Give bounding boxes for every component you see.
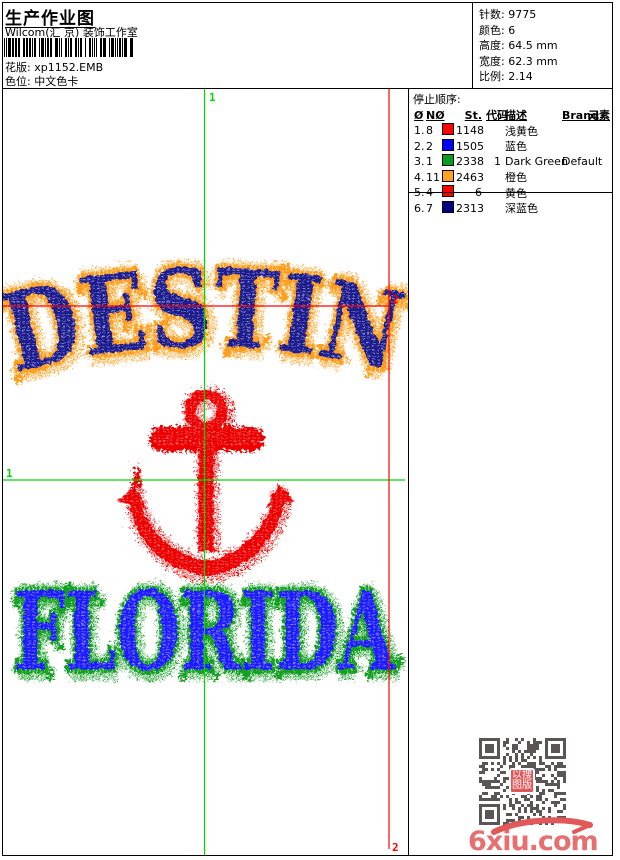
cell-needle: 11 xyxy=(426,171,442,184)
guide-marker-1-top: 1 xyxy=(209,91,216,104)
cell-description: 蓝色 xyxy=(505,138,562,154)
table-row: 2. 2 1505 蓝色 xyxy=(409,139,613,155)
cell-stitches: 2463 xyxy=(456,171,482,184)
color-swatch xyxy=(442,154,454,166)
col-description: 描述 xyxy=(505,107,562,123)
color-card-label: 色位: 中文色卡 xyxy=(5,73,78,89)
cell-stitches: 1148 xyxy=(456,124,482,137)
table-row: 3. 1 2338 1 Dark Green Default xyxy=(409,154,613,170)
cell-stop: 6. xyxy=(414,202,426,215)
table-row: 6. 7 2313 深蓝色 xyxy=(409,201,613,217)
cell-stop: 1. xyxy=(414,124,426,137)
color-swatch xyxy=(442,123,454,135)
table-header-row: Ø NØ St. 代码 描述 Brand 元素 xyxy=(409,108,613,122)
col-needle: NØ xyxy=(426,109,442,122)
stat-ratio: 比例: 2.14 xyxy=(479,69,612,85)
cell-needle: 8 xyxy=(426,124,442,137)
color-swatch xyxy=(442,170,454,182)
top-word-body: DESTIN xyxy=(3,244,408,396)
embroidery-design-canvas: DESTIN DESTIN DESTIN xyxy=(3,89,408,855)
col-code: 代码 xyxy=(486,107,501,123)
table-bottom-border xyxy=(409,192,613,193)
table-row: 1. 8 1148 浅黄色 xyxy=(409,123,613,139)
site-watermark: 6xiu.com xyxy=(464,816,604,858)
cell-description: 深蓝色 xyxy=(505,200,562,216)
color-swatch xyxy=(442,201,454,213)
guide-marker-2-right: 2 xyxy=(392,293,399,306)
col-stitches: St. xyxy=(456,109,482,122)
stat-stitches: 针数: 9775 xyxy=(479,7,612,23)
col-stop: Ø xyxy=(414,109,426,122)
cell-stitches: 1505 xyxy=(456,140,482,153)
cell-needle: 1 xyxy=(426,155,442,168)
bottom-word-body: FLORIDA xyxy=(12,568,395,694)
cell-needle: 2 xyxy=(426,140,442,153)
stat-width: 宽度: 62.3 mm xyxy=(479,54,612,70)
cell-needle: 7 xyxy=(426,202,442,215)
stop-sequence-title: 停止顺序: xyxy=(409,89,613,108)
stat-colors: 颜色: 6 xyxy=(479,23,612,39)
qr-center-logo: 以搜 图版 xyxy=(509,768,535,794)
cell-stop: 3. xyxy=(414,155,426,168)
watermark-text: 6xiu.com xyxy=(468,826,598,857)
design-word-top: DESTIN DESTIN DESTIN xyxy=(3,244,408,396)
cell-stop: 4. xyxy=(414,171,426,184)
design-word-bottom: FLORIDA FLORIDA FLORIDA xyxy=(12,568,395,694)
cell-description: Dark Green xyxy=(505,155,562,168)
barcode xyxy=(4,38,134,57)
stat-height: 高度: 64.5 mm xyxy=(479,38,612,54)
guide-marker-1-left: 1 xyxy=(6,467,13,480)
col-element: 元素 xyxy=(588,107,612,123)
cell-description: 浅黄色 xyxy=(505,123,562,139)
production-worksheet: 生产作业图 Wilcom(汇 京) 装饰工作室 花版: xp1152.EMB 色… xyxy=(0,0,620,860)
stop-sequence-table: 停止顺序: Ø NØ St. 代码 描述 Brand 元素 1. 8 1148 … xyxy=(409,89,613,216)
cell-brand: Default xyxy=(562,155,588,168)
cell-code: 1 xyxy=(486,155,501,168)
cell-description: 橙色 xyxy=(505,169,562,185)
table-row: 4. 11 2463 橙色 xyxy=(409,170,613,186)
cell-stitches: 2313 xyxy=(456,202,482,215)
guide-marker-2-bottom: 2 xyxy=(392,841,399,854)
cell-stop: 2. xyxy=(414,140,426,153)
color-swatch xyxy=(442,139,454,151)
col-brand: Brand xyxy=(562,109,588,122)
design-stats: 针数: 9775 颜色: 6 高度: 64.5 mm 宽度: 62.3 mm 比… xyxy=(472,3,612,88)
cell-stitches: 2338 xyxy=(456,155,482,168)
